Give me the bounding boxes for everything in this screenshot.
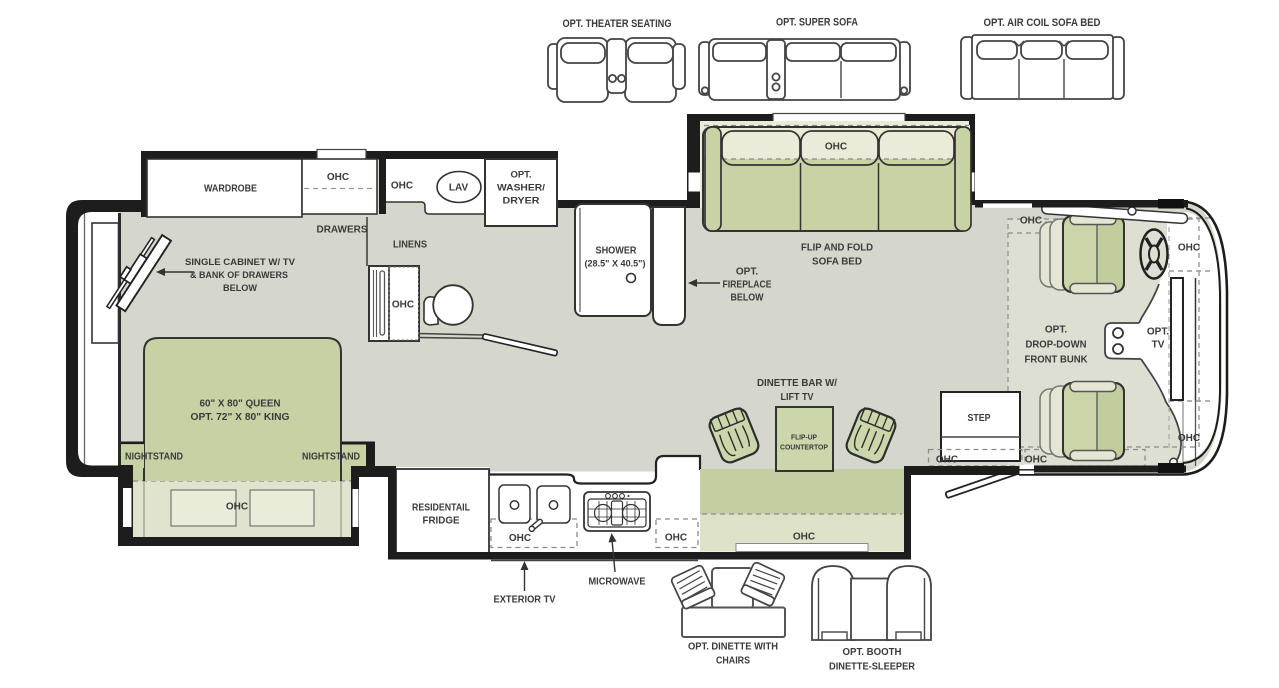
- svg-text:WASHER/: WASHER/: [497, 183, 545, 194]
- svg-text:FRONT BUNK: FRONT BUNK: [1025, 355, 1089, 366]
- svg-text:OPT.: OPT.: [510, 170, 531, 181]
- svg-text:OPT. THEATER SEATING: OPT. THEATER SEATING: [563, 18, 672, 30]
- svg-text:OHC: OHC: [327, 172, 349, 183]
- svg-text:DINETTE BAR W/: DINETTE BAR W/: [757, 378, 837, 389]
- svg-text:OPT.: OPT.: [1045, 325, 1067, 336]
- svg-text:OHC: OHC: [392, 300, 414, 311]
- svg-text:OHC: OHC: [1025, 455, 1047, 466]
- svg-text:MICROWAVE: MICROWAVE: [589, 577, 646, 588]
- svg-text:OHC: OHC: [825, 142, 847, 153]
- svg-text:OHC: OHC: [391, 181, 413, 192]
- svg-text:OPT.: OPT.: [1147, 327, 1169, 338]
- svg-text:DINETTE-SLEEPER: DINETTE-SLEEPER: [829, 662, 916, 673]
- svg-text:LAV: LAV: [449, 183, 469, 194]
- svg-text:NIGHTSTAND: NIGHTSTAND: [302, 452, 360, 463]
- svg-text:OPT. AIR COIL SOFA BED: OPT. AIR COIL SOFA BED: [984, 17, 1101, 29]
- svg-text:LINENS: LINENS: [393, 240, 427, 251]
- svg-text:OHC: OHC: [1020, 216, 1042, 227]
- svg-text:OPT. SUPER SOFA: OPT. SUPER SOFA: [776, 17, 858, 29]
- svg-text:OHC: OHC: [665, 533, 687, 544]
- svg-text:OHC: OHC: [793, 532, 815, 543]
- svg-text:NIGHTSTAND: NIGHTSTAND: [125, 452, 183, 463]
- svg-text:LIFT TV: LIFT TV: [781, 392, 814, 403]
- svg-text:CHAIRS: CHAIRS: [716, 656, 750, 667]
- svg-text:OPT. 72" X 80" KING: OPT. 72" X 80" KING: [191, 412, 290, 423]
- svg-text:OHC: OHC: [509, 533, 531, 544]
- svg-text:WARDROBE: WARDROBE: [204, 184, 257, 195]
- svg-text:SOFA BED: SOFA BED: [812, 257, 862, 268]
- svg-text:OPT. BOOTH: OPT. BOOTH: [843, 647, 902, 658]
- svg-text:SHOWER: SHOWER: [596, 246, 638, 257]
- svg-text:60" X 80" QUEEN: 60" X 80" QUEEN: [200, 399, 281, 410]
- svg-text:OHC: OHC: [936, 455, 958, 466]
- svg-text:OPT. DINETTE WITH: OPT. DINETTE WITH: [688, 642, 778, 653]
- svg-text:BELOW: BELOW: [731, 293, 764, 304]
- svg-text:OHC: OHC: [1178, 243, 1200, 254]
- svg-text:EXTERIOR TV: EXTERIOR TV: [494, 595, 556, 606]
- svg-text:FRIDGE: FRIDGE: [423, 516, 460, 527]
- svg-text:STEP: STEP: [968, 413, 991, 424]
- svg-text:TV: TV: [1152, 340, 1165, 351]
- svg-text:SINGLE CABINET W/ TV: SINGLE CABINET W/ TV: [185, 257, 296, 268]
- svg-text:BELOW: BELOW: [223, 283, 257, 294]
- svg-text:DRAWERS: DRAWERS: [317, 225, 368, 236]
- svg-text:DROP-DOWN: DROP-DOWN: [1026, 340, 1087, 351]
- svg-text:OPT.: OPT.: [736, 267, 758, 278]
- svg-text:FIREPLACE: FIREPLACE: [723, 280, 772, 291]
- svg-text:FLIP AND FOLD: FLIP AND FOLD: [801, 243, 873, 254]
- svg-text:RESIDENTAIL: RESIDENTAIL: [412, 503, 470, 514]
- svg-text:(28.5" X 40.5"): (28.5" X 40.5"): [585, 259, 646, 269]
- svg-text:COUNTERTOP: COUNTERTOP: [780, 443, 828, 452]
- svg-text:OHC: OHC: [1178, 433, 1200, 444]
- svg-text:DRYER: DRYER: [503, 196, 540, 207]
- svg-text:OHC: OHC: [226, 502, 248, 513]
- svg-text:FLIP-UP: FLIP-UP: [791, 433, 817, 442]
- svg-text:& BANK OF DRAWERS: & BANK OF DRAWERS: [190, 270, 288, 281]
